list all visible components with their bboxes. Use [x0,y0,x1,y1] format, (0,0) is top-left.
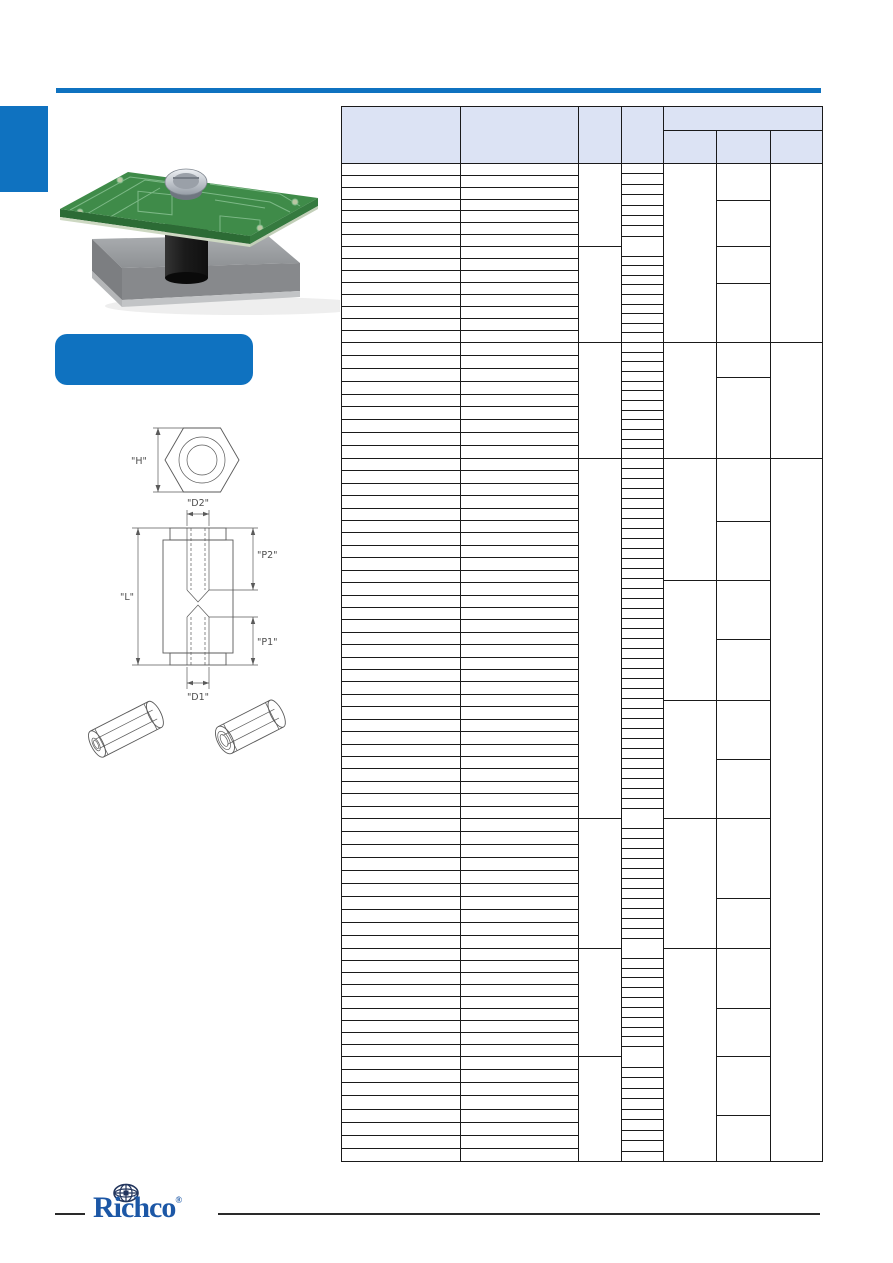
grid-line [621,568,663,569]
grid-line [341,1069,578,1070]
grid-line [621,878,663,879]
grid-line [460,106,461,1162]
grid-line [341,909,578,910]
grid-line [341,445,578,446]
grid-line [716,246,771,247]
grid-line [341,960,578,961]
grid-line [621,256,663,257]
grid-line [621,738,663,739]
grid-line [341,175,578,176]
grid-line [341,744,578,745]
grid-line [341,1135,578,1136]
grid-line [621,1098,663,1099]
grid-line [716,1008,771,1009]
grid-line [341,470,578,471]
grid-line [341,258,578,259]
spec-table [0,0,893,1263]
grid-line [341,163,823,164]
grid-line [621,323,663,324]
grid-line [578,106,579,1162]
grid-line [621,968,663,969]
grid-line [341,595,578,596]
grid-line [716,283,771,284]
grid-line [621,332,663,333]
grid-line [341,806,578,807]
grid-line [621,468,663,469]
grid-line [341,432,578,433]
grid-line [621,858,663,859]
grid-line [621,648,663,649]
grid-line [621,638,663,639]
grid-line [341,818,622,819]
grid-line [621,1109,663,1110]
grid-line [621,225,663,226]
grid-line [621,1027,663,1028]
grid-line [341,731,578,732]
grid-line [716,521,771,522]
grid-line [621,304,663,305]
grid-line [621,598,663,599]
grid-line [716,200,771,201]
grid-line [716,898,771,899]
grid-line [341,106,342,1162]
grid-line [716,639,771,640]
grid-line [621,898,663,899]
grid-line [341,1095,578,1096]
grid-line [621,1007,663,1008]
grid-line [621,498,663,499]
grid-line [341,1032,578,1033]
grid-line [341,1122,578,1123]
grid-line [341,106,823,107]
grid-line [621,284,663,285]
grid-line [621,265,663,266]
grid-line [341,282,578,283]
catalog-page: "H" "D2" "P2" [0,0,893,1263]
grid-line [341,1148,578,1149]
grid-line [341,870,578,871]
grid-line [341,545,578,546]
grid-line [663,130,823,131]
grid-line [621,361,663,362]
grid-line [621,808,663,809]
grid-line [621,628,663,629]
grid-line [341,1020,578,1021]
grid-line [621,977,663,978]
grid-line [621,668,663,669]
grid-line [621,538,663,539]
grid-line [341,706,578,707]
grid-line [341,246,622,247]
grid-line [341,270,578,271]
grid-line [621,938,663,939]
grid-line [621,768,663,769]
grid-line [621,410,663,411]
grid-line [341,330,578,331]
grid-line [621,658,663,659]
grid-line [341,394,578,395]
grid-line [341,508,578,509]
grid-line [621,1119,663,1120]
grid-line [341,1044,578,1045]
grid-line [663,948,771,949]
registered-mark: ® [175,1195,182,1205]
grid-line [663,818,771,819]
grid-line [341,883,578,884]
grid-line [341,756,578,757]
grid-line [663,106,664,1162]
grid-line [621,352,663,353]
grid-line [341,570,578,571]
grid-line [341,935,578,936]
grid-line [341,948,622,949]
grid-line [621,748,663,749]
grid-line [341,619,578,620]
grid-line [621,838,663,839]
grid-line [341,694,578,695]
grid-line [341,342,823,343]
grid-line [621,578,663,579]
grid-line [822,106,823,1162]
grid-line [621,194,663,195]
grid-line [621,828,663,829]
grid-line [716,759,771,760]
grid-line [621,918,663,919]
grid-line [341,306,578,307]
grid-line [621,1140,663,1141]
grid-line [621,798,663,799]
grid-line [621,987,663,988]
grid-line [341,495,578,496]
grid-line [341,607,578,608]
grid-line [341,318,578,319]
grid-line [621,478,663,479]
grid-line [621,848,663,849]
grid-line [341,922,578,923]
grid-line [621,558,663,559]
grid-line [621,236,663,237]
grid-line [621,728,663,729]
grid-line [341,844,578,845]
grid-line [621,1036,663,1037]
grid-line [621,439,663,440]
grid-line [341,669,578,670]
grid-line [341,355,578,356]
grid-line [341,368,578,369]
grid-line [341,1082,578,1083]
grid-line [663,700,771,701]
grid-line [621,868,663,869]
grid-line [341,582,578,583]
grid-line [621,688,663,689]
grid-line [621,294,663,295]
grid-line [621,588,663,589]
grid-line [621,508,663,509]
grid-line [341,972,578,973]
grid-line [621,888,663,889]
grid-line [341,793,578,794]
grid-line [341,857,578,858]
grid-line [341,483,578,484]
grid-line [621,908,663,909]
grid-line [341,1161,823,1162]
grid-line [341,996,578,997]
grid-line [621,173,663,174]
grid-line [341,768,578,769]
grid-line [621,958,663,959]
richco-logo: Richco® [93,1193,182,1223]
grid-line [621,390,663,391]
grid-line [341,657,578,658]
grid-line [621,1046,663,1047]
grid-line [341,210,578,211]
grid-line [621,788,663,789]
grid-line [341,187,578,188]
grid-line [341,681,578,682]
grid-line [716,1056,771,1057]
grid-line [621,1130,663,1131]
grid-line [341,831,578,832]
grid-line [621,419,663,420]
grid-line [621,718,663,719]
grid-line [341,781,578,782]
grid-line [621,1067,663,1068]
grid-line [621,313,663,314]
grid-line [341,234,578,235]
grid-line [621,618,663,619]
grid-line [621,518,663,519]
grid-line [341,1008,578,1009]
grid-line [621,678,663,679]
richco-logo-text: Richco [93,1191,175,1224]
grid-line [341,532,578,533]
footer: Richco® [0,1185,893,1245]
grid-line [341,719,578,720]
grid-line [341,520,578,521]
grid-line [716,1115,771,1116]
grid-line [621,215,663,216]
grid-line [341,984,578,985]
grid-line [621,698,663,699]
grid-line [621,275,663,276]
footer-rule-right [218,1213,820,1215]
grid-line [621,1017,663,1018]
grid-line [341,199,578,200]
grid-line [341,896,578,897]
grid-line [621,997,663,998]
grid-line [621,448,663,449]
grid-line [621,1088,663,1089]
grid-line [621,371,663,372]
footer-rule-left [55,1213,85,1215]
grid-line [341,1056,622,1057]
grid-line [341,557,578,558]
grid-line [621,548,663,549]
grid-line [341,632,578,633]
grid-line [341,222,578,223]
grid-line [621,488,663,489]
grid-line [341,1109,578,1110]
grid-line [621,381,663,382]
grid-line [621,205,663,206]
grid-line [341,458,823,459]
grid-line [663,580,771,581]
grid-line [621,778,663,779]
grid-line [621,608,663,609]
grid-line [621,528,663,529]
grid-line [621,400,663,401]
grid-line [341,419,578,420]
table-header-row [341,106,822,163]
grid-line [341,644,578,645]
grid-line [621,184,663,185]
grid-line [621,429,663,430]
grid-line [621,928,663,929]
grid-line [716,377,771,378]
grid-line [621,758,663,759]
grid-line [621,1077,663,1078]
grid-line [621,1151,663,1152]
grid-line [341,381,578,382]
grid-line [341,406,578,407]
grid-line [341,294,578,295]
grid-line [621,708,663,709]
